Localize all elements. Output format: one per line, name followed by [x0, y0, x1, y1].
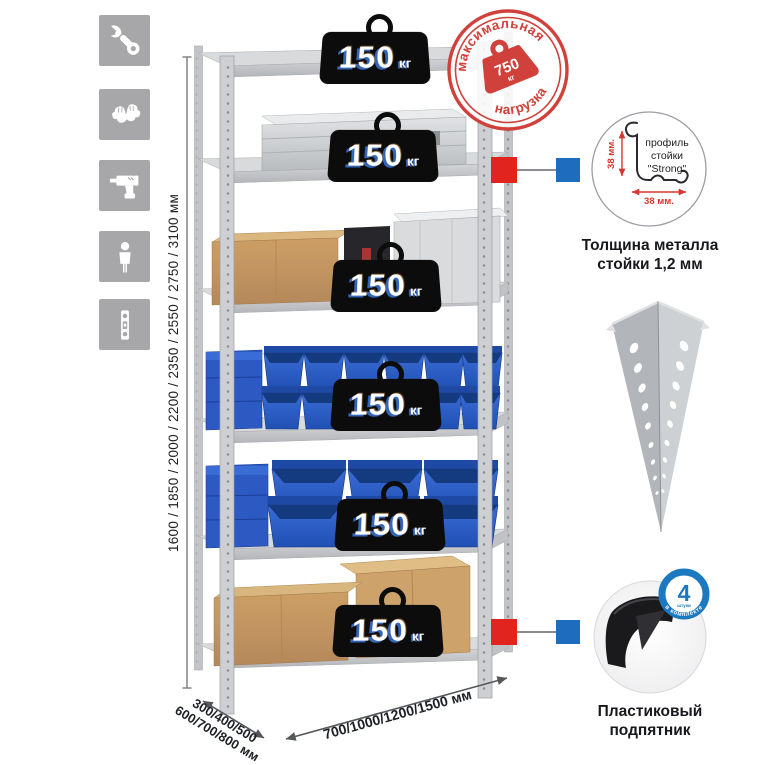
- shelf-load-value: 150: [338, 40, 395, 75]
- shelf-load-value: 150: [349, 268, 406, 303]
- perforated-corner-post: [598, 290, 722, 542]
- quantity-badge: 4 штуки в комплекте: [662, 572, 706, 618]
- shelf-load-value: 150: [351, 613, 408, 648]
- shelf-load-value: 150: [353, 507, 410, 542]
- profile-callout: 38 мм. 38 мм. профиль стойки "Strong": [586, 106, 712, 232]
- foot-caption: Пластиковый подпятник: [568, 702, 732, 740]
- shelf-load-badge: 150 кг: [330, 242, 442, 314]
- profile-caption: Толщина металла стойки 1,2 мм: [568, 236, 732, 274]
- weight-body: 150 кг: [330, 379, 442, 431]
- weight-body: 150 кг: [334, 499, 446, 551]
- foot-callout-connector: [491, 619, 580, 645]
- shelf-load-badge: 150 кг: [334, 481, 446, 553]
- profile-dim-vertical: 38 мм.: [606, 139, 617, 169]
- shelf-load-unit: кг: [414, 522, 427, 537]
- weight-body: 150 кг: [319, 32, 431, 84]
- shelf-load-unit: кг: [407, 153, 420, 168]
- profile-caption-line2: стойки 1,2 мм: [568, 255, 732, 274]
- weight-body: 150 кг: [330, 260, 442, 312]
- shelf-load-badge: 150 кг: [327, 112, 439, 184]
- weight-body: 150 кг: [327, 130, 439, 182]
- height-dimension-label: 1600 / 1850 / 2000 / 2200 / 2350 / 2550 …: [166, 65, 184, 681]
- shelf-load-unit: кг: [399, 55, 412, 70]
- foot-caption-line2: подпятник: [568, 721, 732, 740]
- svg-text:стойки: стойки: [651, 150, 683, 162]
- profile-caption-line1: Толщина металла: [568, 236, 732, 255]
- product-infographic: 150 кг 150 кг 150 кг 150 кг 150 кг: [0, 0, 765, 765]
- svg-text:"Strong": "Strong": [648, 163, 687, 175]
- foot-caption-line1: Пластиковый: [568, 702, 732, 721]
- shelf-load-value: 150: [349, 387, 406, 422]
- profile-callout-connector: [491, 157, 580, 183]
- quantity-subtext: штуки: [677, 603, 691, 608]
- svg-text:профиль: профиль: [645, 137, 689, 149]
- shelf-load-value: 150: [346, 138, 403, 173]
- shelf-load-badge: 150 кг: [330, 361, 442, 433]
- shelf-load-unit: кг: [410, 402, 423, 417]
- shelf-load-badge: 150 кг: [332, 587, 444, 659]
- profile-label: профиль стойки "Strong": [645, 137, 689, 175]
- profile-dim-horizontal: 38 мм.: [644, 196, 674, 207]
- shelf-load-unit: кг: [412, 628, 425, 643]
- plastic-foot-callout: 4 штуки в комплекте: [586, 568, 718, 704]
- shelf-load-unit: кг: [410, 283, 423, 298]
- weight-body: 150 кг: [332, 605, 444, 657]
- max-load-stamp: максимальная нагрузка 750 кг: [440, 2, 576, 138]
- shelf-load-badge: 150 кг: [319, 14, 431, 86]
